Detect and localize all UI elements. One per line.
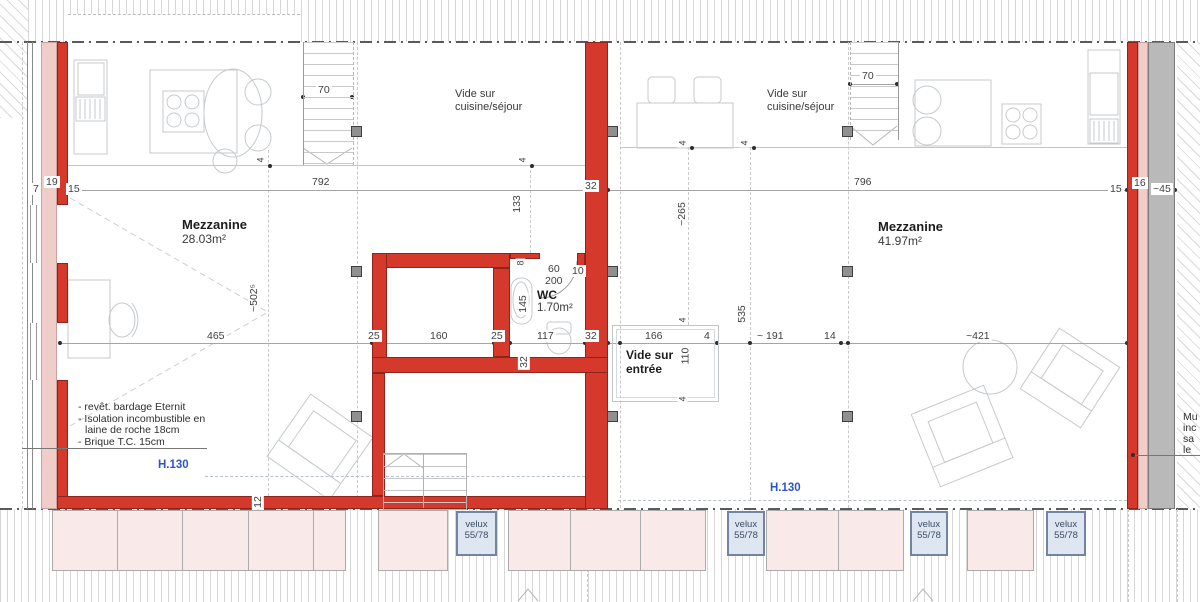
- dim-label: 10: [570, 265, 586, 277]
- wc-name: WC: [537, 289, 557, 302]
- closet-wc-divider: [493, 268, 510, 357]
- right-edge-note: Mu inc sa le: [1183, 412, 1198, 456]
- dormer-panel: [52, 510, 118, 571]
- dim-label: 166: [643, 330, 665, 342]
- velux-label: velux: [465, 519, 487, 530]
- facade-cladding-line: [27, 42, 33, 509]
- party-wall: [585, 42, 608, 509]
- dormer-panel: [313, 510, 346, 571]
- room-name-left: Mezzanine: [182, 218, 247, 231]
- velux-size: 55/78: [917, 530, 941, 541]
- velux-window: velux55/78: [910, 511, 948, 556]
- velux-window: velux55/78: [727, 511, 765, 556]
- wc-area: 1.70m²: [537, 302, 573, 315]
- dim-label: ~45: [1151, 183, 1173, 195]
- dormer-panel: [766, 510, 839, 571]
- dormer-panel: [967, 510, 1034, 571]
- dim-label: 133: [511, 193, 523, 215]
- dim-label: 792: [310, 176, 332, 188]
- stair-storage: [383, 453, 467, 510]
- structural-post: [351, 126, 362, 137]
- dim-label: 16: [1132, 177, 1148, 189]
- dim-label: 15: [66, 183, 82, 195]
- void-label-line: cuisine/séjour: [455, 101, 522, 113]
- dim-tick: [268, 164, 272, 168]
- left-wall-segment: [57, 263, 68, 323]
- dim-label: 15: [1108, 183, 1124, 195]
- void-label-line: Vide sur: [455, 88, 495, 100]
- dim-label: 200: [543, 275, 565, 287]
- dim-label: 160: [428, 330, 450, 342]
- dormer-panel: [182, 510, 249, 571]
- velux-label: velux: [735, 519, 757, 530]
- dim-label: 70: [316, 84, 332, 96]
- dim-label: 32: [583, 330, 599, 342]
- dim-tick: [839, 341, 843, 345]
- room-area-left: 28.03m²: [182, 233, 226, 246]
- structural-post: [842, 266, 853, 277]
- left-wall-segment: [57, 380, 68, 497]
- material-notes: - revêt. bardage Eternit - Isolation inc…: [78, 402, 205, 448]
- dim-label: 4: [256, 155, 266, 164]
- dim-tick: [748, 341, 752, 345]
- right-edge-note-line: le: [1183, 445, 1198, 456]
- block-bottom-wall: [372, 357, 608, 373]
- void-label-line: cuisine/séjour: [767, 101, 834, 113]
- velux-size: 55/78: [1054, 530, 1078, 541]
- velux-window: velux55/78: [1046, 511, 1086, 556]
- dormer-panel: [570, 510, 641, 571]
- dim-label: ~502⁵: [248, 282, 260, 314]
- structural-post: [351, 411, 362, 422]
- structural-post: [607, 266, 618, 277]
- left-wall-insulation: [41, 42, 57, 509]
- dim-label: ~421: [964, 330, 992, 342]
- dim-tick: [58, 341, 62, 345]
- dim-label: 25: [489, 330, 505, 342]
- material-note-line: - revêt. bardage Eternit: [78, 402, 205, 414]
- dim-tick: [752, 146, 756, 150]
- notes-underline: [22, 448, 207, 449]
- window-glazing: [30, 205, 37, 263]
- dormer-panel: [640, 510, 706, 571]
- dim-label: 70: [860, 70, 876, 82]
- velux-label: velux: [1055, 519, 1077, 530]
- window-glazing: [30, 323, 37, 380]
- dormer-panel: [838, 510, 904, 571]
- dim-label: 25: [366, 330, 382, 342]
- right-wall-masonry: [1148, 42, 1175, 509]
- room-name-right: Mezzanine: [878, 220, 943, 233]
- floor-plan: velux55/78 velux55/78 velux55/78 velux55…: [0, 0, 1200, 602]
- velux-window: velux55/78: [456, 511, 497, 556]
- dim-label: 14: [822, 330, 838, 342]
- void-label-line: Vide sur: [767, 88, 807, 100]
- dim-label: 8: [516, 258, 526, 267]
- dim-label: 4: [678, 394, 688, 403]
- dim-label: 535: [736, 303, 748, 325]
- dim-label: 145: [517, 293, 529, 315]
- velux-size: 55/78: [734, 530, 758, 541]
- dim-label: 4: [740, 138, 750, 147]
- dim-label: 796: [852, 176, 874, 188]
- structural-post: [351, 266, 362, 277]
- entry-void-label: Vide sur entrée: [626, 348, 673, 376]
- dim-label: 12: [252, 494, 264, 510]
- staircase-right: [850, 42, 899, 140]
- structural-post: [607, 411, 618, 422]
- block-top-wall: [372, 253, 510, 268]
- dim-label: 4: [678, 138, 688, 147]
- structural-post: [842, 126, 853, 137]
- dormer-panel: [508, 510, 571, 571]
- dim-label: ~ 191: [755, 330, 786, 342]
- entry-void-line: Vide sur: [626, 348, 673, 362]
- dim-label: 19: [44, 176, 60, 188]
- dormer-panel: [378, 510, 448, 571]
- dim-label: 32: [518, 354, 530, 370]
- dim-tick: [846, 341, 850, 345]
- structural-post: [607, 126, 618, 137]
- dormer-panel: [117, 510, 183, 571]
- dim-label: 465: [205, 330, 227, 342]
- room-area-right: 41.97m²: [878, 235, 922, 248]
- material-note-line: laine de roche 18cm: [78, 425, 205, 437]
- height-label-right: H.130: [770, 482, 801, 494]
- dim-label: 60: [546, 263, 562, 275]
- void-label-left: Vide sur cuisine/séjour: [455, 88, 522, 114]
- dim-label: 4: [678, 315, 688, 324]
- dim-tick: [690, 146, 694, 150]
- velux-size: 55/78: [465, 530, 489, 541]
- dim-label: ~265: [676, 200, 688, 228]
- dim-label: 7: [31, 183, 41, 195]
- height-label-left: H.130: [158, 459, 189, 471]
- dim-label: 4: [702, 330, 712, 342]
- dim-label: 110: [679, 346, 691, 367]
- right-note-leader-dot: [1131, 453, 1135, 457]
- structural-post: [842, 411, 853, 422]
- right-wall-insulation: [1138, 42, 1148, 509]
- dim-label: 117: [535, 330, 556, 342]
- block-left-wall: [372, 253, 387, 373]
- stair-storage-divider: [423, 453, 424, 508]
- dormer-panel: [248, 510, 314, 571]
- dim-label: 4: [518, 155, 528, 164]
- entry-void-line: entrée: [626, 362, 662, 376]
- right-wall-red: [1127, 42, 1138, 509]
- bottom-wall-left-unit: [57, 496, 608, 509]
- dim-label: 32: [583, 180, 599, 192]
- material-note-line: - Brique T.C. 15cm: [78, 437, 205, 449]
- staircase-left: [303, 42, 354, 165]
- velux-label: velux: [918, 519, 940, 530]
- dim-tick: [530, 164, 534, 168]
- void-label-right: Vide sur cuisine/séjour: [767, 88, 834, 114]
